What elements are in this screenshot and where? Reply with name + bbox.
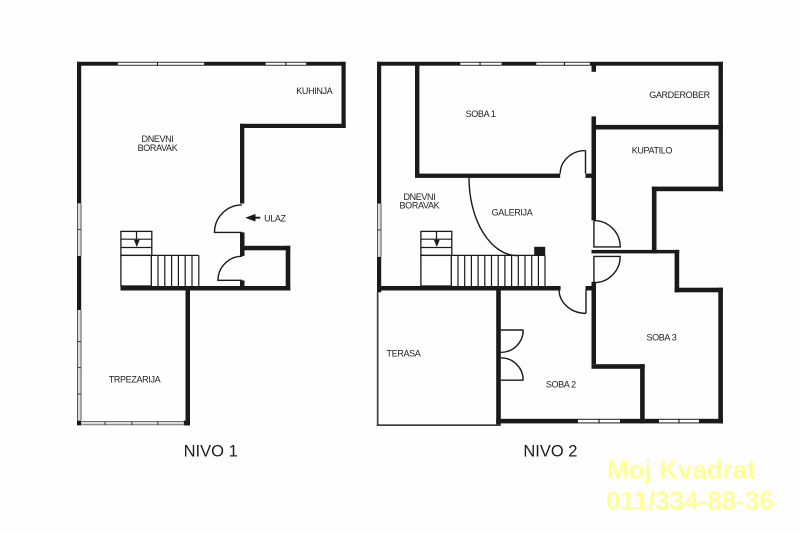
svg-text:TERASA: TERASA <box>387 349 421 359</box>
svg-text:KUPATILO: KUPATILO <box>632 146 673 156</box>
svg-text:GARDEROBER: GARDEROBER <box>649 90 710 100</box>
svg-text:NIVO 2: NIVO 2 <box>523 443 577 461</box>
svg-text:BORAVAK: BORAVAK <box>138 143 178 153</box>
svg-text:011/334-88-36: 011/334-88-36 <box>606 486 774 516</box>
svg-text:SOBA 1: SOBA 1 <box>466 109 496 119</box>
svg-text:GALERIJA: GALERIJA <box>492 207 533 217</box>
svg-text:BORAVAK: BORAVAK <box>400 200 440 210</box>
svg-text:KUHINJA: KUHINJA <box>296 86 332 96</box>
svg-text:ULAZ: ULAZ <box>264 214 286 224</box>
svg-text:TRPEZARIJA: TRPEZARIJA <box>109 375 161 385</box>
svg-text:NIVO 1: NIVO 1 <box>184 443 238 461</box>
svg-text:SOBA 2: SOBA 2 <box>546 380 576 390</box>
svg-text:SOBA 3: SOBA 3 <box>646 332 676 342</box>
svg-text:Moj Kvadrat: Moj Kvadrat <box>607 455 756 485</box>
